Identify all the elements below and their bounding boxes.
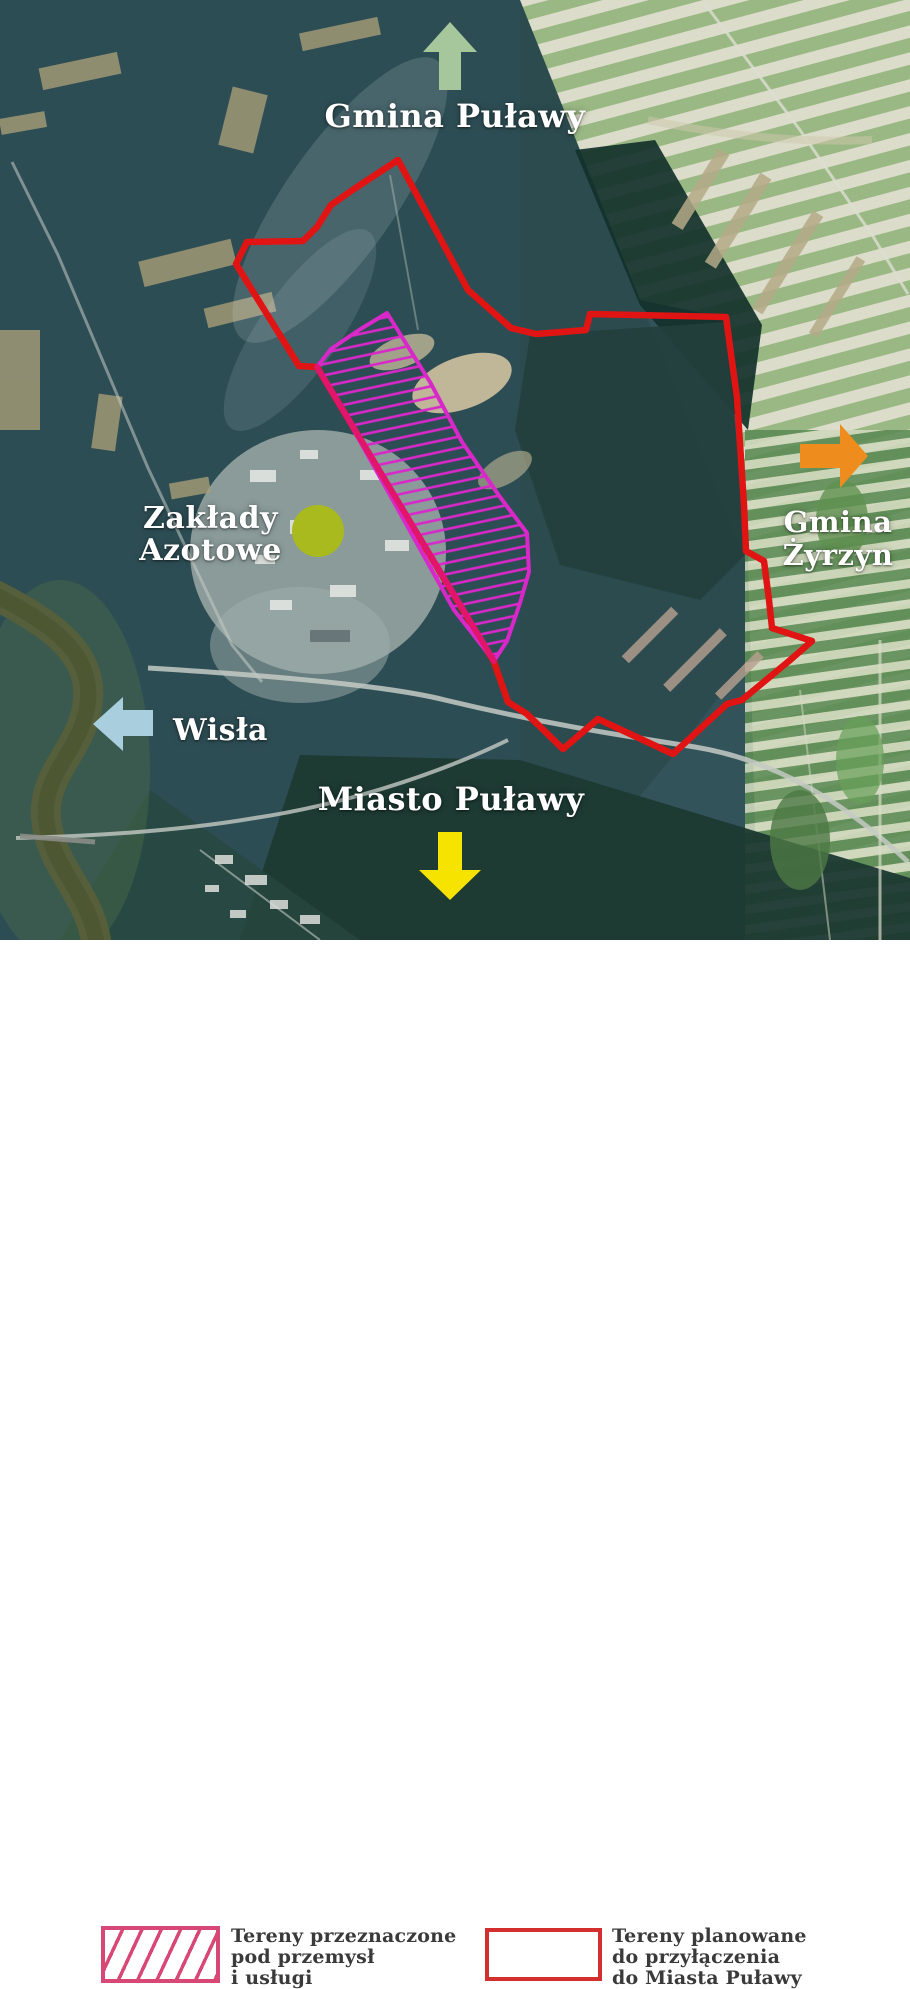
legend-line: pod przemysł (231, 1947, 456, 1968)
annexation-area-legend-text: Tereny planowane do przyłączenia do Mias… (612, 1926, 807, 1989)
label-gmina-zyrzyn: Gmina Żyrzyn (763, 506, 910, 573)
label-gmina-pulawy: Gmina Puławy (255, 99, 655, 134)
industrial-area-legend-text: Tereny przeznaczone pod przemysł i usług… (231, 1926, 456, 1989)
label-miasto-pulawy: Miasto Puławy (251, 782, 651, 817)
left-arrow-shape (93, 697, 153, 751)
legend-line: i usługi (231, 1968, 456, 1989)
satellite-map: Gmina Puławy Gmina Żyrzyn Zakłady Azotow… (0, 0, 910, 940)
legend-line: do Miasta Puławy (612, 1968, 807, 1989)
annexation-area-swatch (485, 1928, 602, 1981)
right-arrow-shape (800, 424, 868, 488)
down-arrow-icon (418, 831, 482, 901)
legend-line: Tereny planowane (612, 1926, 807, 1947)
label-zaklady-line2: Azotowe (108, 535, 313, 567)
legend-line: Tereny przeznaczone (231, 1926, 456, 1947)
up-arrow-shape (423, 22, 477, 90)
legend-line: do przyłączenia (612, 1947, 807, 1968)
label-zaklady-azotowe: Zakłady Azotowe (108, 503, 313, 566)
up-arrow-icon (422, 21, 478, 91)
label-zaklady-line1: Zakłady (108, 503, 313, 535)
down-arrow-shape (419, 832, 481, 900)
label-gmina-zyrzyn-line2: Żyrzyn (763, 539, 910, 572)
industrial-area-swatch (101, 1926, 220, 1983)
label-gmina-zyrzyn-line1: Gmina (763, 506, 910, 539)
right-arrow-icon (799, 423, 869, 489)
label-wisla: Wisła (168, 715, 273, 747)
legend: Tereny przeznaczone pod przemysł i usług… (0, 940, 910, 1080)
left-arrow-icon (92, 696, 154, 752)
